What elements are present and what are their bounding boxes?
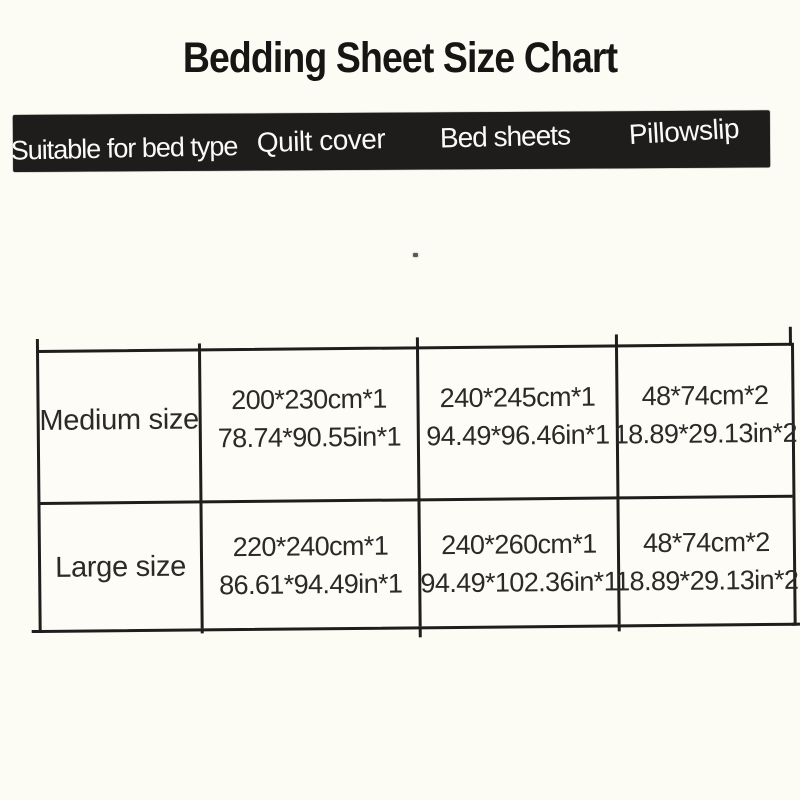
cell-value-in: 78.74*90.55in*1 xyxy=(218,417,402,457)
table-line-overshoot xyxy=(792,623,800,626)
scan-speck-artifact xyxy=(413,253,418,257)
cell-medium-quilt-cover: 200*230cm*1 78.74*90.55in*1 xyxy=(201,349,420,503)
table-line-overshoot xyxy=(201,628,204,633)
table-line-overshoot xyxy=(198,343,201,351)
row-label-medium-size: Medium size xyxy=(39,351,202,505)
cell-value-in: 86.61*94.49in*1 xyxy=(219,564,403,604)
cell-value-in: 18.89*29.13in*2 xyxy=(614,413,798,453)
header-quilt-cover: Quilt cover xyxy=(256,123,385,159)
table-line-overshoot xyxy=(419,626,422,637)
cell-medium-pillowslip: 48*74cm*2 18.89*29.13in*2 xyxy=(618,346,792,500)
cell-large-bed-sheets: 240*260cm*1 94.49*102.36in*1 xyxy=(420,499,620,626)
header-suitable-for-bed-type: Suitable for bed type xyxy=(10,131,237,167)
cell-value-cm: 48*74cm*2 xyxy=(641,375,768,414)
table-line-overshoot xyxy=(615,334,618,347)
cell-value-cm: 48*74cm*2 xyxy=(643,522,770,561)
size-chart-page: Bedding Sheet Size Chart Suitable for be… xyxy=(0,0,800,800)
row-label-large-size: Large size xyxy=(40,503,203,630)
cell-large-quilt-cover: 220*240cm*1 86.61*94.49in*1 xyxy=(202,501,421,628)
page-title: Bedding Sheet Size Chart xyxy=(52,34,748,83)
cell-value-cm: 220*240cm*1 xyxy=(232,526,388,565)
size-table: Medium size 200*230cm*1 78.74*90.55in*1 … xyxy=(36,343,797,633)
cell-value-in: 94.49*96.46in*1 xyxy=(426,415,610,455)
cell-value-cm: 240*260cm*1 xyxy=(441,524,597,563)
cell-value-in: 94.49*102.36in*1 xyxy=(420,562,618,602)
table-line-overshoot xyxy=(36,339,39,353)
table-line-overshoot xyxy=(416,337,419,349)
header-bed-sheets: Bed sheets xyxy=(440,119,571,154)
header-pillowslip: Pillowslip xyxy=(628,113,740,151)
cell-value-cm: 200*230cm*1 xyxy=(231,379,387,418)
cell-value-cm: 240*245cm*1 xyxy=(440,377,596,416)
cell-large-pillowslip: 48*74cm*2 18.89*29.13in*2 xyxy=(619,498,793,625)
table-line-overshoot xyxy=(618,624,621,631)
table-header-bar: Suitable for bed type Quilt cover Bed sh… xyxy=(13,110,770,172)
table-line-overshoot xyxy=(32,630,44,633)
cell-medium-bed-sheets: 240*245cm*1 94.49*96.46in*1 xyxy=(419,347,619,501)
table-line-overshoot xyxy=(789,327,792,346)
cell-value-in: 18.89*29.13in*2 xyxy=(615,560,799,600)
